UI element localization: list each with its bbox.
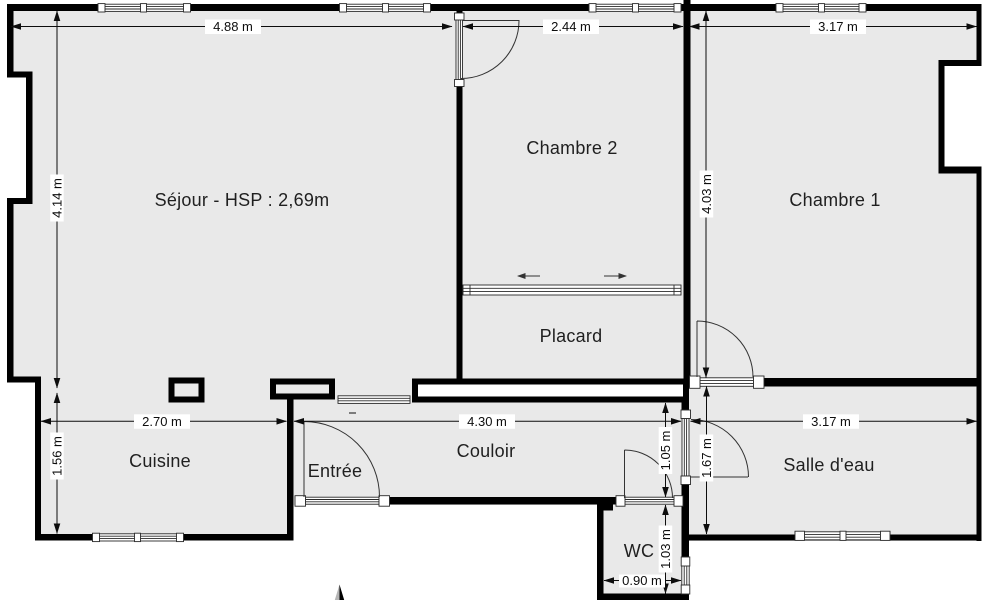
svg-text:1.05 m: 1.05 m <box>658 431 673 471</box>
svg-text:4.03 m: 4.03 m <box>699 174 714 214</box>
svg-text:0.90 m: 0.90 m <box>622 573 662 588</box>
svg-text:Séjour - HSP : 2,69m: Séjour - HSP : 2,69m <box>155 190 330 210</box>
svg-text:Chambre 1: Chambre 1 <box>789 190 880 210</box>
svg-text:Salle d'eau: Salle d'eau <box>783 455 874 475</box>
svg-text:4.14 m: 4.14 m <box>50 178 65 218</box>
svg-text:Chambre 2: Chambre 2 <box>526 138 617 158</box>
svg-text:1.56 m: 1.56 m <box>50 436 65 476</box>
svg-text:4.88 m: 4.88 m <box>213 19 253 34</box>
svg-text:WC: WC <box>624 541 655 561</box>
svg-text:2.44 m: 2.44 m <box>551 19 591 34</box>
svg-text:Couloir: Couloir <box>457 441 516 461</box>
svg-text:Entrée: Entrée <box>308 461 363 481</box>
svg-text:1.67 m: 1.67 m <box>699 438 714 478</box>
svg-text:1.03 m: 1.03 m <box>658 529 673 569</box>
svg-text:Cuisine: Cuisine <box>129 451 191 471</box>
svg-text:3.17 m: 3.17 m <box>818 19 858 34</box>
svg-text:2.70 m: 2.70 m <box>142 414 182 429</box>
svg-text:Placard: Placard <box>540 326 603 346</box>
svg-text:3.17 m: 3.17 m <box>811 414 851 429</box>
svg-text:4.30 m: 4.30 m <box>467 414 507 429</box>
